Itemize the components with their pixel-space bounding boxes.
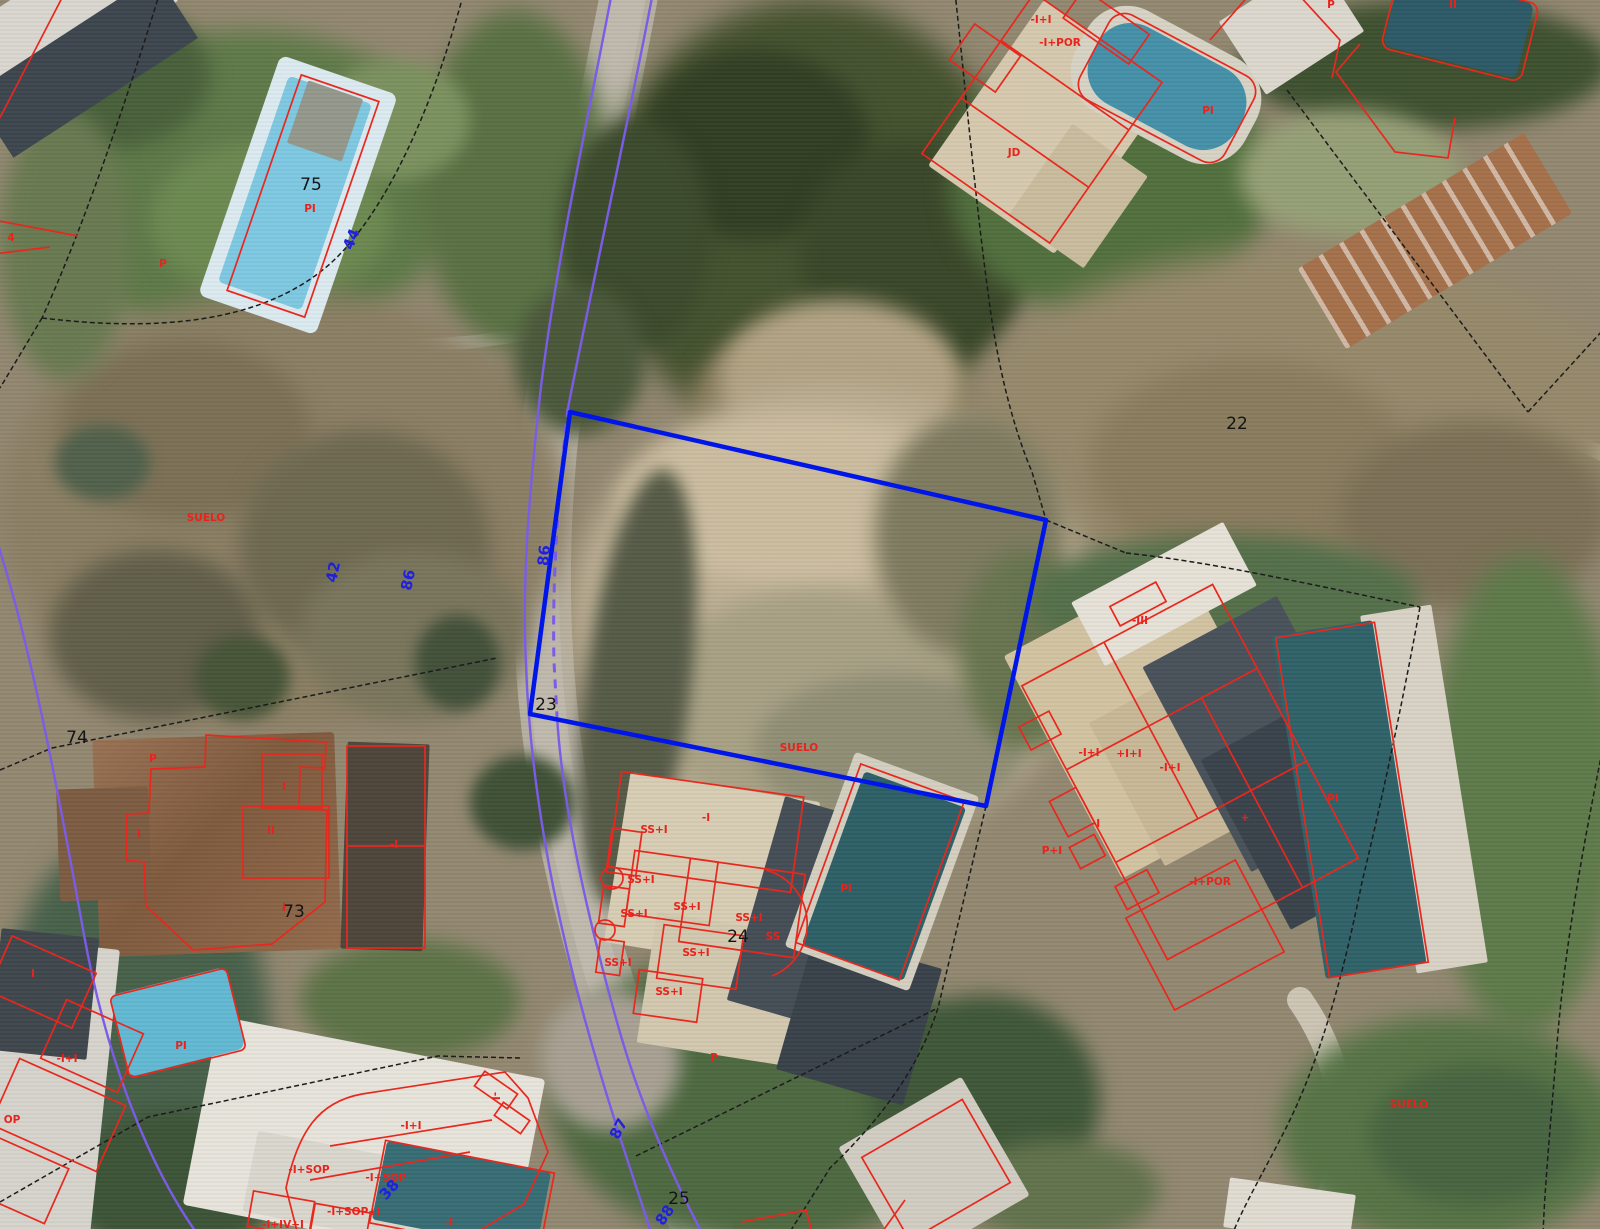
map-label: -I+SOP [288, 1164, 330, 1176]
map-label: P [1327, 0, 1335, 11]
cadastral-overlay: 75222324257374PISUELOSUELOSUELOP4PIIIII-… [0, 0, 1600, 1229]
map-label: I [31, 968, 35, 980]
map-label: 86 [534, 544, 554, 567]
map-label: II [1449, 0, 1457, 11]
map-label: -I [702, 812, 710, 824]
map-label: -I+I [57, 1053, 78, 1065]
map-label: P [159, 258, 167, 270]
map-label: SS+I [673, 901, 700, 913]
map-label: SUELO [780, 742, 819, 754]
map-label: 4 [7, 232, 14, 244]
map-label: PI [840, 883, 852, 895]
map-label: SS [766, 931, 781, 943]
map-label: SS+I [604, 957, 631, 969]
map-label: 86 [397, 568, 419, 592]
map-labels: 75222324257374PISUELOSUELOSUELOP4PIIIII-… [4, 0, 1457, 1229]
map-label: PI [1202, 105, 1214, 117]
map-label: I [137, 828, 141, 840]
map-label: JD [1007, 147, 1021, 159]
map-label: -I+IV+I [262, 1219, 304, 1229]
map-label: -I+I [1079, 747, 1100, 759]
map-label: -I [445, 1216, 453, 1228]
map-label: -I [1092, 818, 1100, 830]
map-label: -III [1132, 615, 1148, 627]
map-label: SS+I [640, 824, 667, 836]
map-label: -I [390, 839, 398, 851]
map-label: 87 [606, 1115, 632, 1142]
map-label: PI [304, 203, 316, 215]
map-label: -I+I [1160, 762, 1181, 774]
map-label: -I+POR [1039, 37, 1081, 49]
map-label: -I+I [401, 1120, 422, 1132]
map-label: 23 [535, 695, 557, 715]
map-label: SUELO [187, 512, 226, 524]
map-label: P+I [1042, 845, 1062, 857]
map-label: I [282, 902, 286, 914]
map-label: II [267, 825, 275, 837]
map-label: + [1241, 812, 1250, 824]
map-label: 24 [727, 927, 749, 947]
parcel-boundary-lines [0, 0, 1600, 1229]
map-label: SS+I [655, 986, 682, 998]
building-outlines-red [0, 0, 1540, 1229]
map-label: 75 [300, 175, 322, 195]
map-label: SS+I [620, 908, 647, 920]
map-label: -I+SOP+I [327, 1206, 381, 1218]
map-label: PI [175, 1040, 187, 1052]
map-label: 22 [1226, 414, 1248, 434]
map-label: OP [4, 1114, 21, 1126]
road-edge-lines [0, 0, 703, 1229]
map-label: -I [489, 1092, 501, 1100]
map-label: P [149, 753, 157, 765]
map-label: -I+I [1031, 14, 1052, 26]
map-label: 25 [668, 1189, 690, 1209]
map-label: PI [1327, 793, 1339, 805]
map-label: SS+I [627, 874, 654, 886]
map-label: 42 [322, 560, 344, 584]
map-label: +I+I [1116, 748, 1141, 760]
map-label: 74 [66, 728, 88, 748]
map-label: SS+I [682, 947, 709, 959]
map-label: SS+I [735, 912, 762, 924]
map-label: I [282, 781, 286, 793]
map-label: -I+POR [1189, 876, 1231, 888]
cadastral-map-viewport[interactable]: 75222324257374PISUELOSUELOSUELOP4PIIIII-… [0, 0, 1600, 1229]
map-label: SUELO [1390, 1099, 1429, 1111]
map-label: P [710, 1052, 718, 1064]
map-label: 73 [283, 902, 305, 922]
